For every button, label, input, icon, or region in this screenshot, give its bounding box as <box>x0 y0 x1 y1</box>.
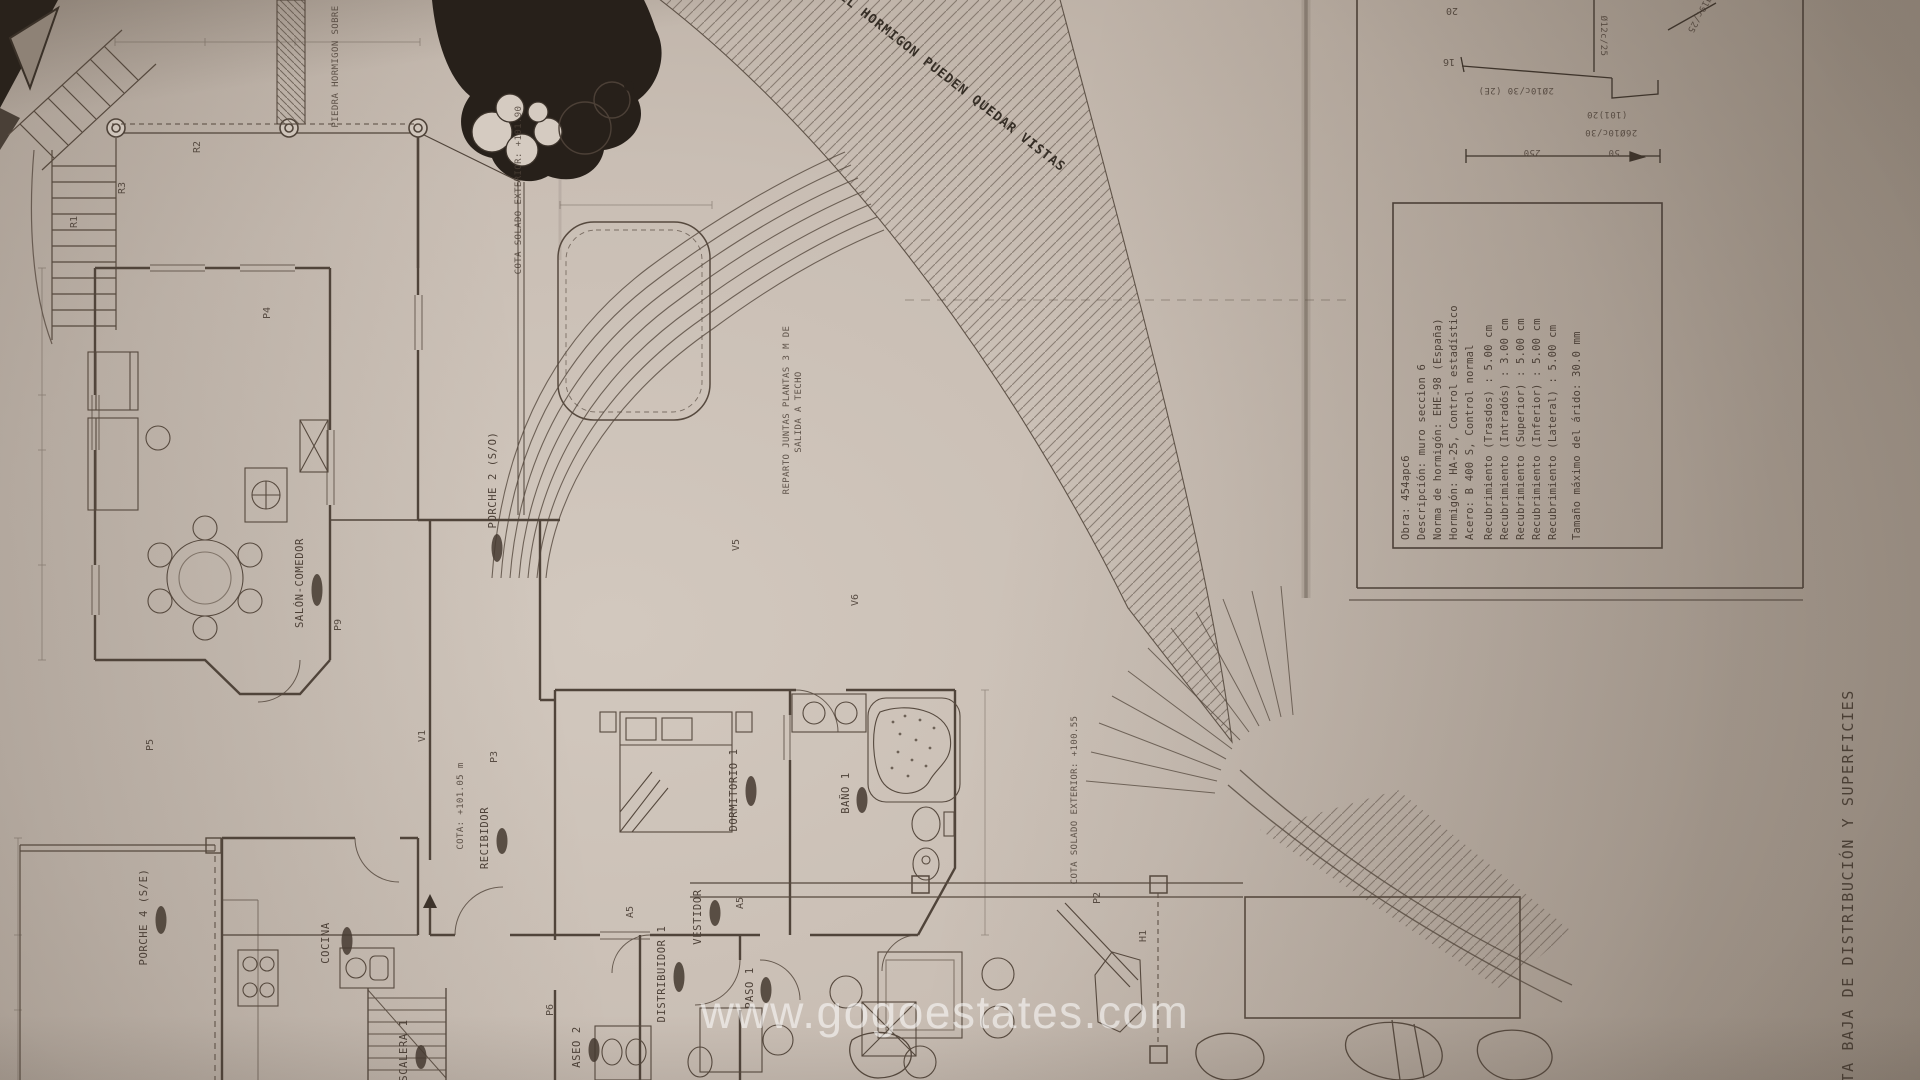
rebar-dim-250: 250 <box>1523 147 1540 157</box>
porch-4-walls <box>20 838 221 1080</box>
entrance-arrow <box>423 894 437 908</box>
marker-p3: P3 <box>489 751 500 763</box>
spec-line-recubrimiento-trasdos: Recubrimiento (Trasdos) : 5.00 cm <box>1483 325 1495 540</box>
room-label-dormitorio-1: DORMITORIO 1 <box>728 748 740 831</box>
marker-r2: R2 <box>192 141 203 153</box>
spec-line-acero: Acero: B 400 S, Control normal <box>1464 344 1476 540</box>
rebar-note-26o10: 26Ø10c/30 <box>1585 127 1637 138</box>
photo-corner-shadow <box>0 0 58 150</box>
salon-furniture <box>88 352 328 640</box>
marker-r3: R3 <box>117 182 128 194</box>
room-label-distribuidor-1: DISTRIBUIDOR 1 <box>656 926 668 1023</box>
rebar-note-bars: 2Ø10c/30 (2E) <box>1478 85 1554 96</box>
spec-line-obra: Obra: 454apc6 <box>1400 455 1412 540</box>
room-label-cocina: COCINA <box>320 922 332 964</box>
nota-salida-techo: SALIDA A TECHO <box>794 371 804 452</box>
marker-p6: P6 <box>545 1004 556 1016</box>
room-label-porche-2: PORCHE 2 (S/O) <box>487 432 499 529</box>
room-label-aseo-2: ASEO 2 <box>571 1026 583 1068</box>
cota-solado-101-90: COTA SOLADO EXTERIOR: +101.90 <box>514 106 524 275</box>
stone-wall-strip <box>277 0 305 124</box>
pool-wall-curves <box>492 152 884 578</box>
marker-20: 20 <box>1446 5 1458 16</box>
marker-p4: P4 <box>262 307 273 319</box>
bath1-fixtures <box>792 694 960 880</box>
spec-box-lines: Obra: 454apc6 Descripción: muro seccion … <box>1400 305 1583 540</box>
marker-labels: R1 R3 R2 P4 P5 P9 P3 V1 V5 V6 A5 A5 P2 H… <box>69 5 1458 1016</box>
rebar-note-o19: Ø19c/25 <box>1685 0 1714 35</box>
rock-outcrop <box>432 0 662 181</box>
spec-line-descripcion: Descripción: muro seccion 6 <box>1416 364 1428 540</box>
marker-a5-left: A5 <box>625 906 636 918</box>
room-label-recibidor: RECIBIDOR <box>479 807 491 869</box>
room-label-porche-4: PORCHE 4 (S/E) <box>138 869 150 966</box>
spec-line-norma: Norma de hormigón: EHE-98 (España) <box>1432 318 1444 540</box>
cota-solado-100-55: COTA SOLADO EXTERIOR: +100.55 <box>1070 716 1080 885</box>
room-label-bano-1: BAÑO 1 <box>839 772 852 814</box>
nota-reparto-juntas: REPARTO JUNTAS PLANTAS 3 M DE <box>782 326 792 495</box>
rebar-note-vertical: Ø12c/25 <box>1598 16 1609 57</box>
porch-columns <box>107 119 427 137</box>
spec-line-recubrimiento-inferior: Recubrimiento (Inferior) : 5.00 cm <box>1531 318 1543 540</box>
marker-v5: V5 <box>731 539 742 551</box>
cota-interior: COTA: +101.05 m <box>456 762 466 849</box>
marker-h1: H1 <box>1138 930 1149 942</box>
rebar-details <box>1461 0 1716 163</box>
spec-line-hormigon: Hormigón: HA-25, Control estadístico <box>1448 305 1460 540</box>
spec-line-recubrimiento-intrados: Recubrimiento (Intradós) : 3.00 cm <box>1499 318 1511 540</box>
house-walls <box>95 133 955 1080</box>
room-label-salon-comedor: SALÓN-COMEDOR <box>293 538 306 628</box>
marker-a5-right: A5 <box>735 897 746 909</box>
spec-line-tamano-arido: Tamaño máximo del árido: 30.0 mm <box>1571 331 1583 540</box>
marker-p2: P2 <box>1092 892 1103 904</box>
marker-p9: P9 <box>333 619 344 631</box>
watermark: www.gogoestates.com <box>701 985 1190 1039</box>
room-label-vestidor: VESTIDOR <box>692 889 704 944</box>
rebar-dim-50: 50 <box>1608 147 1620 157</box>
nota-piedra-hormigon: PIEDRA HORMIGON SOBRE MURO <box>331 0 341 128</box>
floor-plan-drawing: Obra: 454apc6 Descripción: muro seccion … <box>0 0 1920 1080</box>
rebar-note-101-20: (101)20 <box>1587 109 1628 119</box>
marker-v6: V6 <box>850 594 861 606</box>
windows <box>92 265 790 939</box>
pool-paved-pad <box>558 222 710 420</box>
marker-16: 16 <box>1443 56 1455 67</box>
marker-r1: R1 <box>69 216 80 228</box>
spec-line-recubrimiento-lateral: Recubrimiento (Lateral) : 5.00 cm <box>1547 325 1559 540</box>
room-label-escalera-1: ESCALERA 1 <box>398 1019 410 1080</box>
door-arcs <box>258 660 918 1005</box>
marker-v1: V1 <box>417 730 428 742</box>
marker-p5: P5 <box>145 739 156 751</box>
spec-box: Obra: 454apc6 Descripción: muro seccion … <box>1393 203 1662 548</box>
sheet-title: PLANTA BAJA DE DISTRIBUCIÓN Y SUPERFICIE… <box>1838 689 1857 1080</box>
spec-line-recubrimiento-superior: Recubrimiento (Superior) : 5.00 cm <box>1515 318 1527 540</box>
floor-plan-photo: Obra: 454apc6 Descripción: muro seccion … <box>0 0 1920 1080</box>
